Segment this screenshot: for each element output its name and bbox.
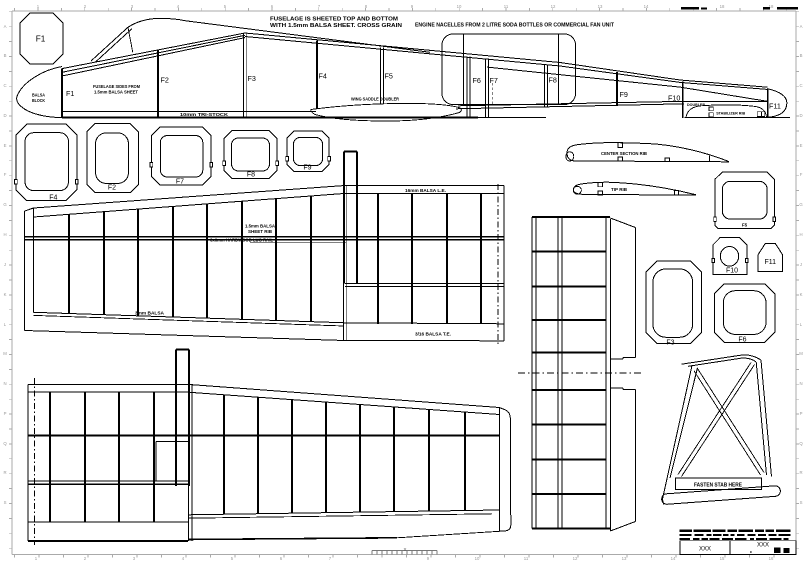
svg-text:F: F: [800, 172, 803, 177]
svg-text:14: 14: [644, 4, 649, 9]
svg-text:FUSELAGE IS SHEETED TOP AND BO: FUSELAGE IS SHEETED TOP AND BOTTOM: [270, 16, 398, 22]
svg-text:F11: F11: [769, 102, 781, 111]
svg-text:A: A: [800, 24, 803, 29]
svg-text:R: R: [799, 470, 802, 475]
svg-text:A: A: [4, 24, 7, 29]
svg-text:16: 16: [769, 556, 774, 561]
svg-text:D: D: [3, 113, 6, 118]
svg-text:R: R: [3, 470, 6, 475]
svg-text:F3: F3: [666, 339, 674, 346]
svg-text:F2: F2: [161, 76, 169, 85]
svg-text:K: K: [4, 292, 7, 297]
svg-text:F9: F9: [620, 90, 628, 99]
svg-text:F3: F3: [248, 74, 256, 83]
svg-text:ENGINE NACELLES FROM 2 LITRE S: ENGINE NACELLES FROM 2 LITRE SODA BOTTLE…: [415, 23, 615, 29]
svg-text:F10: F10: [668, 94, 680, 103]
svg-text:F8: F8: [247, 172, 255, 179]
svg-text:WITH 1.5mm BALSA SHEET. CROSS: WITH 1.5mm BALSA SHEET. CROSS GRAIN: [270, 23, 402, 29]
svg-text:J: J: [4, 262, 6, 267]
svg-text:H: H: [3, 232, 6, 237]
svg-text:12: 12: [573, 556, 578, 561]
svg-text:12: 12: [551, 4, 556, 9]
svg-text:K: K: [800, 292, 803, 297]
svg-text:N: N: [3, 381, 6, 386]
svg-text:BLOCK: BLOCK: [32, 98, 46, 103]
svg-text:F1: F1: [66, 89, 74, 98]
svg-text:13: 13: [598, 4, 603, 9]
svg-text:Χ: Χ: [403, 547, 406, 552]
svg-text:3mm BALSA: 3mm BALSA: [135, 311, 165, 316]
svg-text:FUSELAGE SIDES FROM: FUSELAGE SIDES FROM: [93, 84, 140, 89]
svg-text:F10: F10: [726, 268, 738, 275]
svg-text:1.5mm BALSA: 1.5mm BALSA: [245, 224, 276, 229]
svg-text:1.5mm BALSA SHEET: 1.5mm BALSA SHEET: [94, 90, 138, 95]
svg-text:F6: F6: [738, 336, 746, 343]
svg-text:F4: F4: [49, 194, 57, 201]
svg-text:M: M: [3, 351, 7, 356]
svg-text:BALSA: BALSA: [32, 93, 46, 98]
svg-text:B: B: [800, 53, 803, 58]
svg-text:14: 14: [671, 556, 676, 561]
svg-text:N: N: [799, 381, 802, 386]
svg-text:F1: F1: [36, 35, 46, 44]
svg-text:FASTEN STAB HERE: FASTEN STAB HERE: [694, 483, 742, 489]
svg-text:D: D: [799, 113, 802, 118]
svg-text:P: P: [800, 411, 803, 416]
svg-text:XXX: XXX: [757, 543, 769, 549]
svg-text:H: H: [799, 232, 802, 237]
svg-text:TIP RIB: TIP RIB: [611, 187, 627, 192]
svg-text:F: F: [4, 172, 7, 177]
svg-text:F7: F7: [176, 178, 184, 185]
svg-text:E: E: [800, 143, 803, 148]
svg-text:F9: F9: [303, 165, 311, 172]
svg-text:F7: F7: [490, 76, 498, 85]
svg-text:10: 10: [475, 556, 480, 561]
svg-text:11: 11: [504, 4, 509, 9]
svg-text:E: E: [4, 143, 7, 148]
svg-text:P: P: [4, 411, 7, 416]
svg-text:16mm BALSA L.E.: 16mm BALSA L.E.: [405, 188, 446, 193]
svg-text:F5: F5: [385, 72, 393, 81]
svg-text:M: M: [799, 351, 803, 356]
svg-text:F8: F8: [549, 76, 557, 85]
svg-text:10mm TRI-STOCK: 10mm TRI-STOCK: [180, 112, 229, 117]
svg-text:CENTER SECTION RIB: CENTER SECTION RIB: [601, 151, 647, 156]
svg-text:18: 18: [720, 4, 725, 9]
svg-text:DOUBLER: DOUBLER: [687, 103, 705, 107]
svg-text:J: J: [800, 262, 802, 267]
svg-text:3/16 BALSA T.E.: 3/16 BALSA T.E.: [415, 332, 451, 337]
svg-text:F6: F6: [473, 76, 481, 85]
svg-text:WING SADDLE DOUBLER: WING SADDLE DOUBLER: [351, 97, 400, 102]
svg-text:C: C: [799, 83, 802, 88]
svg-text:11: 11: [524, 556, 529, 561]
svg-text:F2: F2: [108, 185, 116, 192]
svg-text:B: B: [4, 53, 7, 58]
svg-text:SHEET RIB: SHEET RIB: [248, 229, 272, 234]
svg-text:XXX: XXX: [699, 547, 711, 553]
svg-text:F11: F11: [765, 259, 777, 266]
svg-text:STABILIZER RIB: STABILIZER RIB: [716, 112, 745, 116]
svg-text:F4: F4: [319, 72, 327, 81]
svg-text:15: 15: [720, 556, 725, 561]
svg-text:C: C: [3, 83, 6, 88]
svg-text:13: 13: [622, 556, 627, 561]
svg-text:10: 10: [457, 4, 462, 9]
svg-text:F5: F5: [742, 223, 748, 228]
svg-text:S: S: [800, 500, 803, 505]
svg-text:S: S: [4, 500, 7, 505]
